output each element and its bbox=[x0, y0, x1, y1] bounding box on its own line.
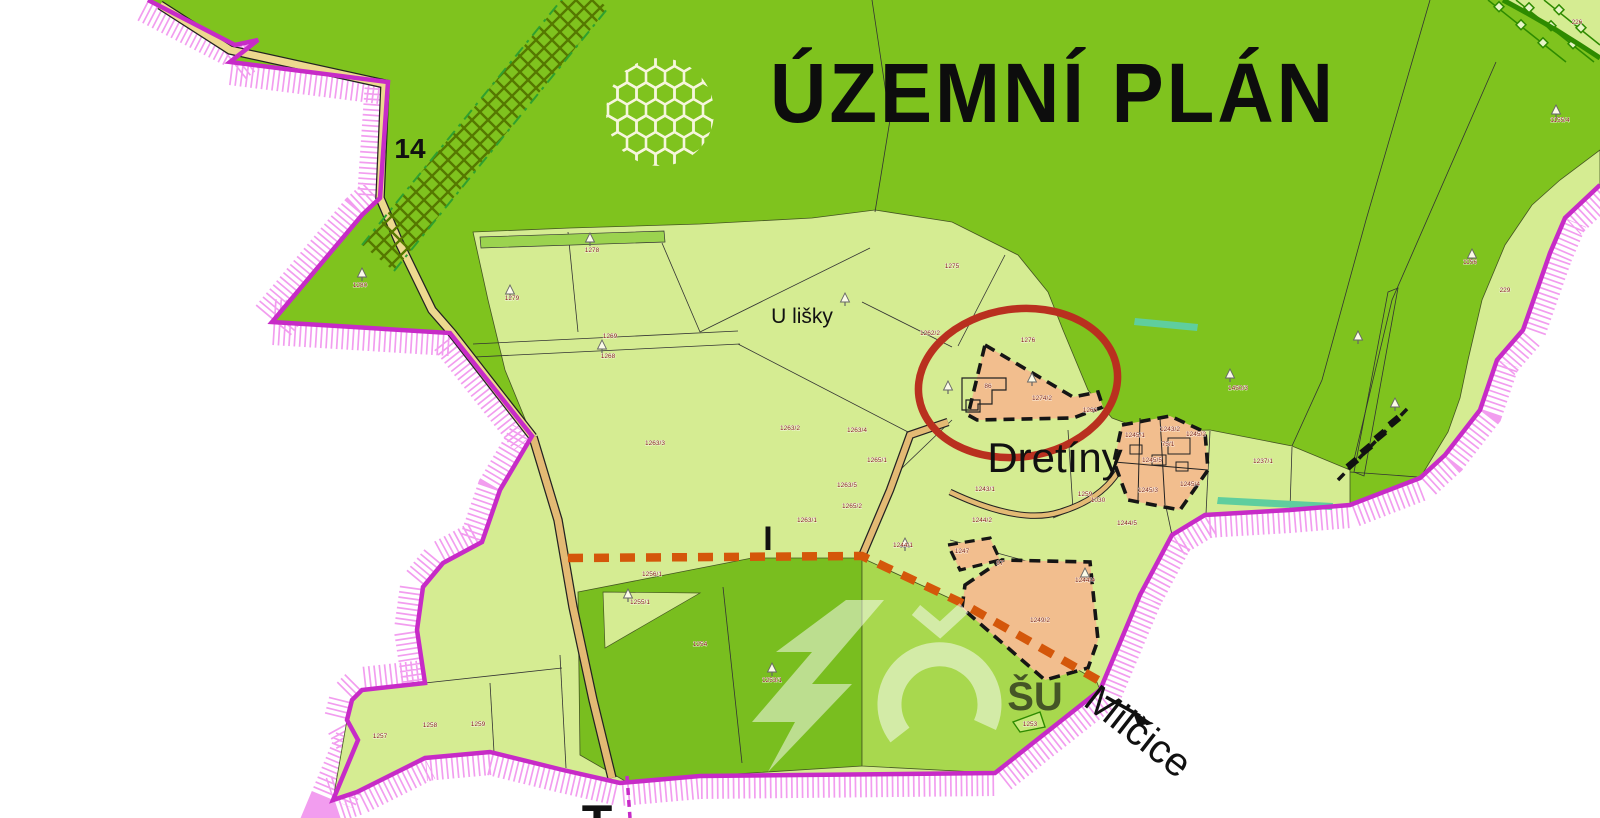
parcel-number: 1280 bbox=[353, 282, 368, 289]
parcel-number: 1256/1 bbox=[642, 571, 662, 578]
parcel-number: 1244/2 bbox=[972, 517, 992, 524]
parcel-number: 1245/5 bbox=[1142, 457, 1162, 464]
parcel-number: 226 bbox=[1572, 19, 1583, 26]
parcel-number: 1156 bbox=[1463, 259, 1477, 266]
parcel-number: 1450/3 bbox=[1228, 385, 1248, 392]
parcel-number: 1275 bbox=[945, 263, 960, 270]
place-label: Dretíny bbox=[987, 434, 1122, 481]
parcel-number: 1262/2 bbox=[920, 330, 940, 337]
parcel-number: 1243/1 bbox=[975, 486, 995, 493]
parcel-number: 1268 bbox=[601, 353, 616, 360]
parcel-number: 1245/4 bbox=[1180, 481, 1200, 488]
place-label: 14 bbox=[394, 133, 426, 164]
parcel-number: 1276 bbox=[1021, 337, 1036, 344]
place-label: U lišky bbox=[771, 305, 833, 328]
parcel-number: 1253/1 bbox=[762, 677, 782, 684]
parcel-number: 1244/5 bbox=[1117, 520, 1137, 527]
parcel-number: 1247 bbox=[955, 548, 970, 555]
parcel-number: 1278 bbox=[585, 247, 600, 254]
parcel-number: 1263/3 bbox=[645, 440, 665, 447]
parcel-number: 1245/1 bbox=[1125, 432, 1145, 439]
parcel-number: 1258 bbox=[423, 722, 438, 729]
parcel-number: 1265/1 bbox=[867, 457, 887, 464]
zoning-plan-map-image: 127812791269126812751262/21263/31263/412… bbox=[0, 0, 1600, 818]
parcel-number: 1259 bbox=[471, 721, 486, 728]
parcel-number: 1263/5 bbox=[837, 482, 857, 489]
parcel-number: 75/1 bbox=[1162, 441, 1175, 448]
parcel-number: 1257 bbox=[373, 733, 388, 740]
parcel-number: 1254 bbox=[693, 641, 708, 648]
parcel-number: 1249/2 bbox=[1030, 617, 1050, 624]
parcel-number: 1237/1 bbox=[1253, 458, 1273, 465]
place-label: ŠU bbox=[1007, 673, 1063, 719]
parcel-number: 86 bbox=[984, 383, 992, 390]
parcel-number: 97 bbox=[996, 560, 1004, 567]
place-label: Milčice bbox=[1076, 677, 1199, 787]
parcel-number: 1155/4 bbox=[1550, 117, 1570, 124]
place-label: T bbox=[582, 795, 613, 818]
map-title: ÚZEMNÍ PLÁN bbox=[770, 44, 1490, 142]
parcel-number: 1269 bbox=[603, 333, 618, 340]
parcel-number: 1265/2 bbox=[842, 503, 862, 510]
place-label: I bbox=[763, 520, 772, 558]
parcel-number: 1245/3 bbox=[1138, 487, 1158, 494]
parcel-number: 1244/1 bbox=[893, 542, 913, 549]
parcel-number: 1245/2 bbox=[1186, 431, 1206, 438]
parcel-number: 1263/4 bbox=[847, 427, 867, 434]
parcel-number: 1279 bbox=[505, 295, 520, 302]
parcel-number: 1243/2 bbox=[1160, 426, 1180, 433]
parcel-number: 1274/2 bbox=[1032, 395, 1052, 402]
parcel-number: 1266 bbox=[1083, 407, 1098, 414]
parcel-number: 1263/2 bbox=[780, 425, 800, 432]
parcel-number: 1255/1 bbox=[630, 599, 650, 606]
parcel-number: 1244/4 bbox=[1075, 577, 1095, 584]
parcel-number: 1263/1 bbox=[797, 517, 817, 524]
parcel-number: 1030 bbox=[1091, 497, 1106, 504]
parcel-number: 1253 bbox=[1023, 721, 1038, 728]
parcel-number: 229 bbox=[1500, 287, 1511, 294]
